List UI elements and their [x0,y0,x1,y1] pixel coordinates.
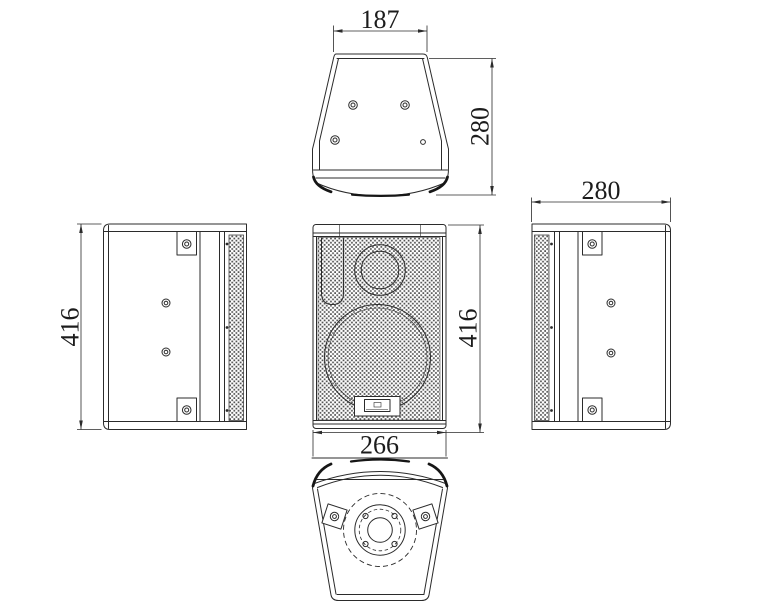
grille-screw [226,326,229,329]
dimension-top-width: 187 [334,5,428,52]
dim-front-width-label: 266 [360,431,399,460]
left-view-top-mount-plate [177,232,197,256]
arrowhead [418,29,427,33]
arrowhead [662,200,671,204]
dim-top-depth-label: 280 [466,107,495,146]
front-view [313,225,446,429]
bottom-view-front-guard-middle [351,460,409,462]
arrowhead [478,225,482,234]
arrowhead [437,431,446,435]
arrowhead [532,200,541,204]
arrowhead [478,424,482,433]
right-side-view [532,224,671,430]
dimension-front-height: 416 [448,225,484,433]
grille-screw [550,243,553,246]
top-view-outline [313,54,449,196]
arrowhead [490,59,494,68]
arrowhead [79,224,83,233]
grille-screw [550,409,553,412]
left-view-bottom-mount-plate [177,398,197,422]
right-view-top-mount-plate [583,232,603,256]
dimension-front-width: 266 [313,430,484,460]
grille-screw [226,243,229,246]
technical-drawing-page: 187 280 [0,0,758,615]
left-view-grille-strip [229,235,244,421]
arrowhead [313,431,322,435]
grille-screw [226,409,229,412]
right-view-grille-strip [535,235,550,421]
arrowhead [79,421,83,430]
bottom-view [312,458,448,601]
arrowhead [490,186,494,195]
dim-left-height-label: 416 [56,308,85,347]
left-view-outline [104,224,247,430]
arrowhead [334,29,343,33]
logo-plate [355,397,401,417]
dim-front-height-label: 416 [454,309,483,348]
left-side-view [104,224,247,430]
dim-right-depth-label: 280 [582,176,621,205]
top-view [313,54,449,196]
grille-screw [550,326,553,329]
dimension-left-height: 416 [56,224,102,430]
dimension-right-depth: 280 [532,176,671,222]
bottom-view-outline [313,472,448,601]
right-view-bottom-mount-plate [583,398,603,422]
speaker-drawing-svg: 187 280 [0,0,758,615]
dim-top-width-label: 187 [361,5,400,34]
